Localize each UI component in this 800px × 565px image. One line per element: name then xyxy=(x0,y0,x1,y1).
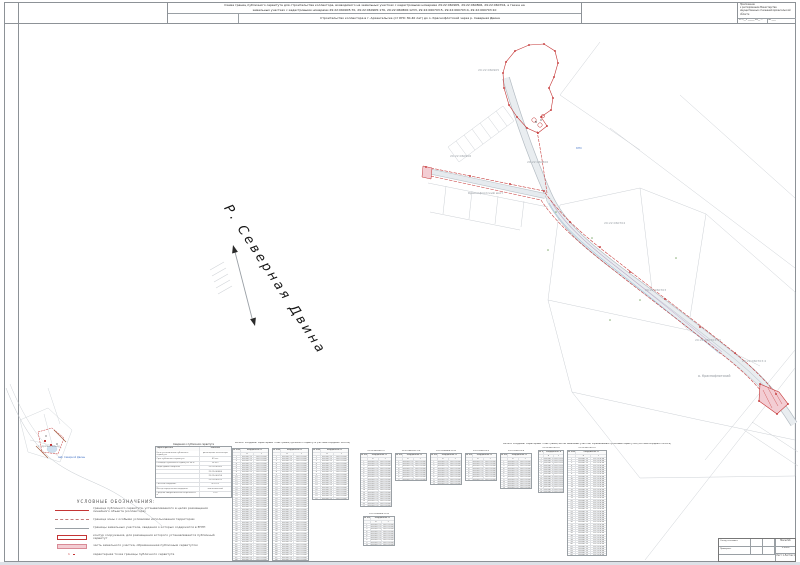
legend-item: характерная точка границы публичного сер… xyxy=(55,552,225,558)
coordinate-row: 10650341.232521376.48 xyxy=(313,475,348,477)
coordinate-row: 12650341.232521376.48 xyxy=(273,479,308,481)
boundary-point-marker xyxy=(528,44,530,46)
coordinate-row: 7650341.232521376.48 xyxy=(313,468,348,470)
coordinate-row: 1650341.232521376.48 xyxy=(501,460,531,462)
coordinate-row: 8650341.232521376.48 xyxy=(431,475,461,477)
coordinate-row: 46650341.232521376.48 xyxy=(273,553,308,555)
date-cell xyxy=(763,539,775,546)
coordinate-row: 13650341.232521376.48 xyxy=(568,483,606,485)
info-table-row: 29:22:060703 xyxy=(156,478,231,482)
boundary-point-marker xyxy=(537,132,539,134)
legend-item-label: граница зоны с особыми условиями использ… xyxy=(93,518,194,521)
boundary-point-marker xyxy=(569,221,571,223)
coordinate-row: 8650341.232521376.48 xyxy=(568,472,606,474)
coordinate-row: 9650341.232521376.48 xyxy=(431,478,461,480)
coordinate-row: 19650341.232521376.48 xyxy=(233,494,268,496)
boundary-point-marker xyxy=(526,127,528,129)
coordinate-table: № точкиКоординаты, мXY1650341.232521376.… xyxy=(232,448,269,561)
coordinate-row: 22650341.232521376.48 xyxy=(273,501,308,503)
coordinate-row: 7650341.232521376.48 xyxy=(539,470,563,472)
coordinate-row: 8650341.232521376.48 xyxy=(466,475,496,477)
coordinate-row: 9650341.232521376.48 xyxy=(273,473,308,475)
coordinate-row: 4650341.232521376.48 xyxy=(364,530,394,532)
coordinate-row: 16650341.232521376.48 xyxy=(361,493,391,495)
coordinate-table: 29:22:060703:10№ точкиКоординаты, мXY165… xyxy=(567,447,607,556)
coordinate-row: 21650341.232521376.48 xyxy=(273,499,308,501)
coordinate-row: 11650341.232521376.48 xyxy=(361,482,391,484)
coordinate-row: 5650341.232521376.48 xyxy=(396,469,426,471)
scale-value: 1:2000 xyxy=(776,547,795,555)
coordinate-row: 25650341.232521376.48 xyxy=(568,510,606,512)
coordinate-row: 19650341.232521376.48 xyxy=(568,496,606,498)
coordinate-row: 36650341.232521376.48 xyxy=(273,532,308,534)
coordinate-row: 14650341.232521376.48 xyxy=(233,483,268,485)
coordinate-table: 29:22:060703:4№ точкиКоординаты, мXY1650… xyxy=(500,450,532,489)
coordinate-row: 16650341.232521376.48 xyxy=(233,488,268,490)
map-label: 29:22:060703:4 xyxy=(742,359,766,363)
boundary-point-marker xyxy=(758,400,760,402)
boundary-point-marker xyxy=(557,62,559,64)
boundary-point-marker xyxy=(552,97,554,99)
scale-label: Масштаб xyxy=(776,539,795,547)
coordinate-row: 34650341.232521376.48 xyxy=(568,529,606,531)
coordinate-row: 33650341.232521376.48 xyxy=(233,525,268,527)
info-table-row: Средняя квадратическая погрешность, м0.1… xyxy=(156,491,231,497)
coordinate-table: 29:22:060905:70№ точкиКоординаты, мXY165… xyxy=(360,450,392,507)
coordinate-row: 15650341.232521376.48 xyxy=(313,486,348,488)
coordinate-row: 7650341.232521376.48 xyxy=(233,468,268,470)
coordinate-row: 2650341.232521376.48 xyxy=(313,457,348,459)
coordinate-row: 26650341.232521376.48 xyxy=(273,510,308,512)
legend-items: граница публичного сервитута, устанавлив… xyxy=(55,507,225,558)
line-red-dash-symbol xyxy=(55,516,89,522)
coordinate-row: 2650341.232521376.48 xyxy=(233,457,268,459)
coordinate-row: 39650341.232521376.48 xyxy=(568,540,606,542)
coordinate-row: 14650341.232521376.48 xyxy=(361,488,391,490)
coordinate-row: 3650341.232521376.48 xyxy=(431,464,461,466)
coordinate-row: 46650341.232521376.48 xyxy=(233,553,268,555)
coordinate-row: 4650341.232521376.48 xyxy=(273,462,308,464)
date-cell xyxy=(763,547,775,554)
coordinate-row: 2650341.232521376.48 xyxy=(396,462,426,464)
info-table-row: Система координатМСК-29 xyxy=(156,482,231,486)
coordinate-row: 12650341.232521376.48 xyxy=(313,479,348,481)
coordinate-row: 16650341.232521376.48 xyxy=(273,488,308,490)
coordinate-row: 6650341.232521376.48 xyxy=(361,471,391,473)
coordinate-row: 4650341.232521376.48 xyxy=(431,467,461,469)
coordinate-row: 4650341.232521376.48 xyxy=(466,467,496,469)
coordinate-row: 24650341.232521376.48 xyxy=(233,505,268,507)
coordinate-row: 5650341.232521376.48 xyxy=(273,464,308,466)
title-block: Схему составил: Проверил: Масштаб 1:2000… xyxy=(718,538,796,562)
coordinate-row: 12650341.232521376.48 xyxy=(361,484,391,486)
coordinate-row: 6650341.232521376.48 xyxy=(364,534,394,536)
coordinate-row: 2650341.232521376.48 xyxy=(539,459,563,461)
title-block-scale: Масштаб 1:2000 Лист 1 Листов 1 xyxy=(775,539,795,561)
coordinate-row: 1650341.232521376.48 xyxy=(466,460,496,462)
coordinate-row: 6650341.232521376.48 xyxy=(539,468,563,470)
coordinate-row: 17650341.232521376.48 xyxy=(361,495,391,497)
boundary-point-marker xyxy=(546,125,548,127)
legend-item: контур сооружения, для размещения которо… xyxy=(55,534,225,541)
coordinate-row: 20650341.232521376.48 xyxy=(568,499,606,501)
coordinate-row: 8650341.232521376.48 xyxy=(539,472,563,474)
coordinate-row: 26650341.232521376.48 xyxy=(568,512,606,514)
coordinate-row: 8650341.232521376.48 xyxy=(364,538,394,540)
coordinate-row: 20650341.232521376.48 xyxy=(273,497,308,499)
coordinate-row: 31650341.232521376.48 xyxy=(233,521,268,523)
coordinate-row: 42650341.232521376.48 xyxy=(273,545,308,547)
legend-item-label: характерная точка границы публичного сер… xyxy=(93,553,174,556)
coordinate-row: 5650341.232521376.48 xyxy=(431,469,461,471)
coordinate-row: 18650341.232521376.48 xyxy=(233,492,268,494)
coordinate-row: 8650341.232521376.48 xyxy=(361,475,391,477)
coordinate-row: 10650341.232521376.48 xyxy=(361,480,391,482)
boundary-point-marker xyxy=(699,326,701,328)
coordinate-row: 1650341.232521376.48 xyxy=(431,460,461,462)
title-block-row2: Проверил: xyxy=(719,547,775,555)
boundary-point-marker xyxy=(469,175,471,177)
coordinate-row: 11650341.232521376.48 xyxy=(568,479,606,481)
coordinate-row: 9650341.232521376.48 xyxy=(539,475,563,477)
coordinate-row: 1650341.232521376.48 xyxy=(396,460,426,462)
coordinate-row: 10650341.232521376.48 xyxy=(364,543,394,545)
coordinate-row: 31650341.232521376.48 xyxy=(273,521,308,523)
coordinate-row: 15650341.232521376.48 xyxy=(273,486,308,488)
coordinate-row: 27650341.232521376.48 xyxy=(273,512,308,514)
coordinate-row: 43650341.232521376.48 xyxy=(273,547,308,549)
coordinate-row: 24650341.232521376.48 xyxy=(273,505,308,507)
coordinate-row: 41650341.232521376.48 xyxy=(233,543,268,545)
legend-title: УСЛОВНЫЕ ОБОЗНАЧЕНИЯ: xyxy=(55,499,225,504)
coordinate-table: 29:22:060905:176№ точкиКоординаты, мXY16… xyxy=(395,450,427,481)
parcel-tables-row2: 29:22:060806:1233№ точкиКоординаты, мXY1… xyxy=(363,513,395,546)
servitude-corridor xyxy=(428,171,772,397)
coordinate-row: 7650341.232521376.48 xyxy=(466,473,496,475)
boundary-point-marker xyxy=(502,72,504,74)
coordinate-row: 2650341.232521376.48 xyxy=(273,457,308,459)
coordinate-row: 42650341.232521376.48 xyxy=(233,545,268,547)
coordinate-row: 40650341.232521376.48 xyxy=(233,540,268,542)
coordinate-row: 35650341.232521376.48 xyxy=(273,529,308,531)
coordinate-row: 3650341.232521376.48 xyxy=(361,464,391,466)
boundary-point-marker xyxy=(550,109,552,111)
coordinate-table: 29:22:060806:1233№ точкиКоординаты, мXY1… xyxy=(430,450,462,485)
coordinate-row: 40650341.232521376.48 xyxy=(273,540,308,542)
info-table-box: Характеристика Значение Цель установлени… xyxy=(155,446,232,498)
map-labels: 29:22:06090529:22:06090629:22:06080629:2… xyxy=(38,68,766,459)
coordinate-row: 34650341.232521376.48 xyxy=(233,527,268,529)
map-label: наб. Северной Двины xyxy=(58,456,85,459)
coordinate-row: 18650341.232521376.48 xyxy=(273,492,308,494)
coordinate-row: 13650341.232521376.48 xyxy=(233,481,268,483)
coordinate-row: 47650341.232521376.48 xyxy=(233,556,268,558)
coordinate-row: 11650341.232521376.48 xyxy=(539,479,563,481)
coordinate-row: 17650341.232521376.48 xyxy=(233,490,268,492)
signature-cell xyxy=(751,547,763,554)
coordinate-row: 19650341.232521376.48 xyxy=(273,494,308,496)
boundary-point-marker xyxy=(516,116,518,118)
coordinate-row: 16650341.232521376.48 xyxy=(568,490,606,492)
coordinate-row: 6650341.232521376.48 xyxy=(501,471,531,473)
info-table-row: Срок публичного сервитута49 лет xyxy=(156,456,231,460)
coordinate-row: 18650341.232521376.48 xyxy=(313,492,348,494)
coordinate-row: 9650341.232521376.48 xyxy=(313,473,348,475)
coordinate-row: 38650341.232521376.48 xyxy=(233,536,268,538)
point-symbol xyxy=(55,552,89,558)
coordinate-row: 13650341.232521376.48 xyxy=(539,483,563,485)
coordinate-row: 3650341.232521376.48 xyxy=(233,459,268,461)
bridge-road xyxy=(506,78,794,424)
coordinate-row: 25650341.232521376.48 xyxy=(273,508,308,510)
coordinate-row: 5650341.232521376.48 xyxy=(466,469,496,471)
coordinate-row: 9650341.232521376.48 xyxy=(233,473,268,475)
coordinate-row: 27650341.232521376.48 xyxy=(233,512,268,514)
legend-item-label: граница публичного сервитута, устанавлив… xyxy=(93,507,225,514)
coordinate-row: 11650341.232521376.48 xyxy=(233,477,268,479)
coordinate-row: 39650341.232521376.48 xyxy=(273,538,308,540)
map-label: КНС xyxy=(576,146,582,150)
coordinate-row: 18650341.232521376.48 xyxy=(361,497,391,499)
map-label: 29:22:060906 xyxy=(450,154,471,158)
coordinate-row: 33650341.232521376.48 xyxy=(273,525,308,527)
coordinate-row: 38650341.232521376.48 xyxy=(273,536,308,538)
coordinate-row: 11650341.232521376.48 xyxy=(431,482,461,484)
boundary-point-marker xyxy=(543,190,545,192)
coordinate-row: 9650341.232521376.48 xyxy=(568,475,606,477)
legend-item: часть земельного участка, обремененная п… xyxy=(55,543,225,549)
coordinate-row: 2650341.232521376.48 xyxy=(364,525,394,527)
coordinate-row: 1650341.232521376.48 xyxy=(364,523,394,525)
coordinate-row: 3650341.232521376.48 xyxy=(364,527,394,529)
coordinate-row: 23650341.232521376.48 xyxy=(568,505,606,507)
coordinate-row: 13650341.232521376.48 xyxy=(361,486,391,488)
coordinate-row: 13650341.232521376.48 xyxy=(273,481,308,483)
coordinate-row: 21650341.232521376.48 xyxy=(568,501,606,503)
coordinate-row: 29650341.232521376.48 xyxy=(233,516,268,518)
coordinate-row: 9650341.232521376.48 xyxy=(396,478,426,480)
coordinate-row: 32650341.232521376.48 xyxy=(233,523,268,525)
boundary-point-marker xyxy=(664,298,666,300)
coordinate-row: 4650341.232521376.48 xyxy=(568,464,606,466)
coordinate-row: 17650341.232521376.48 xyxy=(273,490,308,492)
coordinate-row: 6650341.232521376.48 xyxy=(396,471,426,473)
coordinate-row: 7650341.232521376.48 xyxy=(568,470,606,472)
coordinate-row: 5650341.232521376.48 xyxy=(364,532,394,534)
info-table-row: 29:22:060704 xyxy=(156,473,231,477)
coordinate-row: 3650341.232521376.48 xyxy=(273,459,308,461)
map-label: 29:22:060905 xyxy=(478,68,499,72)
coordinate-row: 1650341.232521376.48 xyxy=(233,455,268,457)
catalog-tables: № точкиКоординаты, мXY1650341.232521376.… xyxy=(232,448,349,561)
coordinate-row: 14650341.232521376.48 xyxy=(313,483,348,485)
coordinate-row: 7650341.232521376.48 xyxy=(431,473,461,475)
coordinate-row: 22650341.232521376.48 xyxy=(233,501,268,503)
coordinate-row: 24650341.232521376.48 xyxy=(568,507,606,509)
coordinate-row: 11650341.232521376.48 xyxy=(501,482,531,484)
boundary-point-marker xyxy=(509,183,511,185)
coordinate-row: 48650341.232521376.48 xyxy=(233,558,268,560)
sheet-number: Лист 1 Листов 1 xyxy=(776,554,795,561)
coordinate-table: № точкиКоординаты, мXY1650341.232521376.… xyxy=(312,448,349,500)
coordinate-row: 20650341.232521376.48 xyxy=(233,497,268,499)
coordinate-row: 7650341.232521376.48 xyxy=(364,536,394,538)
coordinate-row: 35650341.232521376.48 xyxy=(568,531,606,533)
coordinate-row: 10650341.232521376.48 xyxy=(273,475,308,477)
coordinate-row: 1650341.232521376.48 xyxy=(361,460,391,462)
coordinate-row: 37650341.232521376.48 xyxy=(273,534,308,536)
coordinate-row: 7650341.232521376.48 xyxy=(273,468,308,470)
coordinate-row: 29650341.232521376.48 xyxy=(273,516,308,518)
coordinate-row: 10650341.232521376.48 xyxy=(568,477,606,479)
map-label: о. Краснофлотский xyxy=(698,374,730,378)
coordinate-row: 12650341.232521376.48 xyxy=(233,479,268,481)
legend-item: границы земельных участков, сведения о к… xyxy=(55,525,225,531)
coordinate-row: 12650341.232521376.48 xyxy=(501,484,531,486)
coordinate-row: 5650341.232521376.48 xyxy=(501,469,531,471)
coordinate-table: 29:22:060703:10№ точкиКоординаты, мXY165… xyxy=(538,447,564,493)
coordinate-row: 19650341.232521376.48 xyxy=(313,494,348,496)
coordinate-row: 4650341.232521376.48 xyxy=(233,462,268,464)
coordinate-row: 8650341.232521376.48 xyxy=(233,470,268,472)
info-table-row: Цель установления публичного сервитутара… xyxy=(156,451,231,456)
coordinate-row: 6650341.232521376.48 xyxy=(431,471,461,473)
coordinate-row: 1650341.232521376.48 xyxy=(568,457,606,459)
coordinate-table: № точкиКоординаты, мXY1650341.232521376.… xyxy=(272,448,309,561)
coordinate-row: 7650341.232521376.48 xyxy=(396,473,426,475)
boundary-point-marker xyxy=(759,383,761,385)
coordinate-row: 15650341.232521376.48 xyxy=(361,491,391,493)
coordinate-row: 45650341.232521376.48 xyxy=(273,551,308,553)
coordinate-row: 3650341.232521376.48 xyxy=(466,464,496,466)
coordinate-row: 10650341.232521376.48 xyxy=(501,480,531,482)
coordinate-row: 35650341.232521376.48 xyxy=(233,529,268,531)
coordinate-row: 32650341.232521376.48 xyxy=(273,523,308,525)
coordinate-row: 43650341.232521376.48 xyxy=(568,549,606,551)
info-table-row: 29:22:060806 xyxy=(156,469,231,473)
legend-item-label: часть земельного участка, обремененная п… xyxy=(93,544,198,547)
coordinate-row: 12650341.232521376.48 xyxy=(568,481,606,483)
coordinate-row: 36650341.232521376.48 xyxy=(568,534,606,536)
parcel-tables-row1: 29:22:060905:70№ точкиКоординаты, мXY165… xyxy=(360,450,532,507)
coordinate-row: 3650341.232521376.48 xyxy=(568,461,606,463)
coordinate-row: 40650341.232521376.48 xyxy=(568,542,606,544)
coordinate-row: 37650341.232521376.48 xyxy=(568,536,606,538)
boundary-point-marker xyxy=(776,413,778,415)
legend: УСЛОВНЫЕ ОБОЗНАЧЕНИЯ: граница публичного… xyxy=(55,499,225,560)
coordinate-row: 22650341.232521376.48 xyxy=(568,503,606,505)
coordinate-row: 4650341.232521376.48 xyxy=(313,462,348,464)
coordinate-row: 26650341.232521376.48 xyxy=(233,510,268,512)
parcel-catalog-title: Каталог координат характерных точек гран… xyxy=(402,443,772,446)
coordinate-row: 12650341.232521376.48 xyxy=(539,481,563,483)
coordinate-row: 9650341.232521376.48 xyxy=(501,478,531,480)
coordinate-row: 30650341.232521376.48 xyxy=(568,520,606,522)
coordinate-row: 15650341.232521376.48 xyxy=(539,488,563,490)
coordinate-row: 10650341.232521376.48 xyxy=(233,475,268,477)
legend-item-label: границы земельных участков, сведения о к… xyxy=(93,526,205,529)
map-label: 29:22:060703:10 xyxy=(695,338,721,342)
boundary-point-marker xyxy=(425,166,427,168)
legend-item: граница зоны с особыми условиями использ… xyxy=(55,516,225,522)
boundary-point-marker xyxy=(775,393,777,395)
coordinate-row: 30650341.232521376.48 xyxy=(273,518,308,520)
coordinate-row: 41650341.232521376.48 xyxy=(568,545,606,547)
coordinate-row: 3650341.232521376.48 xyxy=(313,459,348,461)
info-table-body: Цель установления публичного сервитутара… xyxy=(156,451,231,496)
boundary-point-marker xyxy=(548,87,550,89)
coordinate-row: 43650341.232521376.48 xyxy=(233,547,268,549)
signature-cell xyxy=(751,539,763,546)
coordinate-row: 13650341.232521376.48 xyxy=(501,486,531,488)
coordinate-row: 23650341.232521376.48 xyxy=(273,503,308,505)
map-label: 29:22:060704 xyxy=(604,221,625,225)
coordinate-row: 1650341.232521376.48 xyxy=(273,455,308,457)
coordinate-row: 3650341.232521376.48 xyxy=(501,464,531,466)
coordinate-row: 10650341.232521376.48 xyxy=(539,477,563,479)
coordinate-row: 9650341.232521376.48 xyxy=(364,541,394,543)
coordinate-row: 6650341.232521376.48 xyxy=(233,466,268,468)
coordinate-row: 20650341.232521376.48 xyxy=(361,502,391,504)
coordinate-row: 4650341.232521376.48 xyxy=(501,467,531,469)
coordinate-row: 44650341.232521376.48 xyxy=(568,551,606,553)
coordinate-row: 20650341.232521376.48 xyxy=(313,497,348,499)
boundary-point-marker xyxy=(503,87,505,89)
boundary-point-marker xyxy=(514,50,516,52)
coordinate-row: 16650341.232521376.48 xyxy=(539,490,563,492)
rect-red-symbol xyxy=(55,534,89,540)
coordinate-row: 11650341.232521376.48 xyxy=(273,477,308,479)
coordinate-row: 5650341.232521376.48 xyxy=(568,466,606,468)
info-table-row: Метод определения координатаналитический xyxy=(156,486,231,490)
river-bank-hatch xyxy=(210,262,232,294)
coordinate-row: 8650341.232521376.48 xyxy=(273,470,308,472)
coordinate-row: 13650341.232521376.48 xyxy=(313,481,348,483)
coordinate-row: 5650341.232521376.48 xyxy=(539,466,563,468)
boundary-point-marker xyxy=(787,403,789,405)
coordinate-row: 8650341.232521376.48 xyxy=(313,470,348,472)
coordinate-row: 25650341.232521376.48 xyxy=(233,508,268,510)
coordinate-row: 5650341.232521376.48 xyxy=(361,469,391,471)
title-block-row1: Схему составил: xyxy=(719,539,775,547)
coordinate-row: 18650341.232521376.48 xyxy=(568,494,606,496)
coordinate-row: 3650341.232521376.48 xyxy=(396,464,426,466)
map-label: 29:22:060806 xyxy=(527,160,548,164)
coordinate-row: 31650341.232521376.48 xyxy=(568,523,606,525)
coordinate-table: 29:22:060806:1233№ точкиКоординаты, мXY1… xyxy=(363,513,395,546)
coordinate-row: 21650341.232521376.48 xyxy=(233,499,268,501)
servitude-info-table: Сведения о публичном сервитуте Характери… xyxy=(155,443,232,498)
coordinate-row: 5650341.232521376.48 xyxy=(313,464,348,466)
coordinate-row: 17650341.232521376.48 xyxy=(313,490,348,492)
rect-pink-symbol xyxy=(55,543,89,549)
coordinate-row: 19650341.232521376.48 xyxy=(361,499,391,501)
coordinate-row: 15650341.232521376.48 xyxy=(233,486,268,488)
coordinate-row: 6650341.232521376.48 xyxy=(466,471,496,473)
boundary-point-marker xyxy=(540,116,542,118)
coordinate-row: 28650341.232521376.48 xyxy=(273,514,308,516)
parcel-tables-right: 29:22:060703:10№ точкиКоординаты, мXY165… xyxy=(538,447,607,556)
coordinate-row: 3650341.232521376.48 xyxy=(539,461,563,463)
coordinate-row: 14650341.232521376.48 xyxy=(539,485,563,487)
coordinate-row: 47650341.232521376.48 xyxy=(273,556,308,558)
coordinate-row: 11650341.232521376.48 xyxy=(313,477,348,479)
coordinate-row: 4650341.232521376.48 xyxy=(361,467,391,469)
boundary-point-marker xyxy=(505,61,507,63)
coordinate-row: 28650341.232521376.48 xyxy=(233,514,268,516)
coordinate-row: 2650341.232521376.48 xyxy=(431,462,461,464)
coordinate-row: 45650341.232521376.48 xyxy=(568,553,606,555)
